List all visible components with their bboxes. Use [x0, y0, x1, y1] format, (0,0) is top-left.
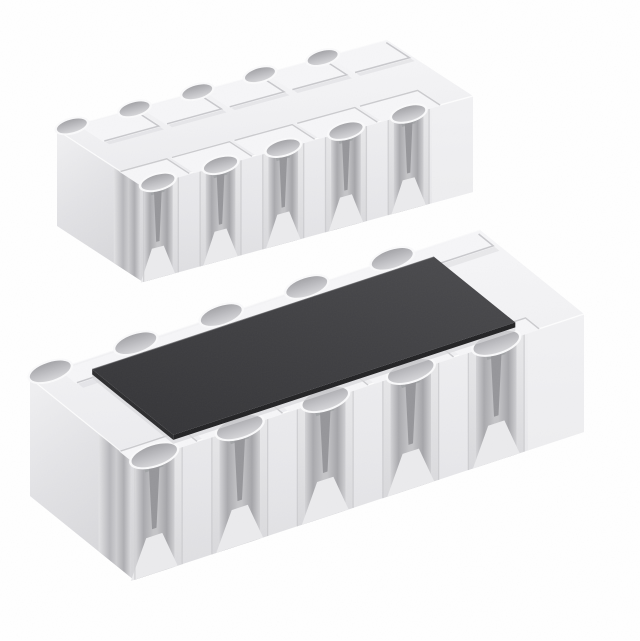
end-terminal-block	[432, 96, 473, 203]
corner-castellation-groove	[114, 167, 141, 280]
product-photo: 3D product render of a white ceramic chi…	[0, 0, 640, 640]
end-terminal-block	[528, 314, 584, 451]
product-image	[0, 0, 640, 640]
